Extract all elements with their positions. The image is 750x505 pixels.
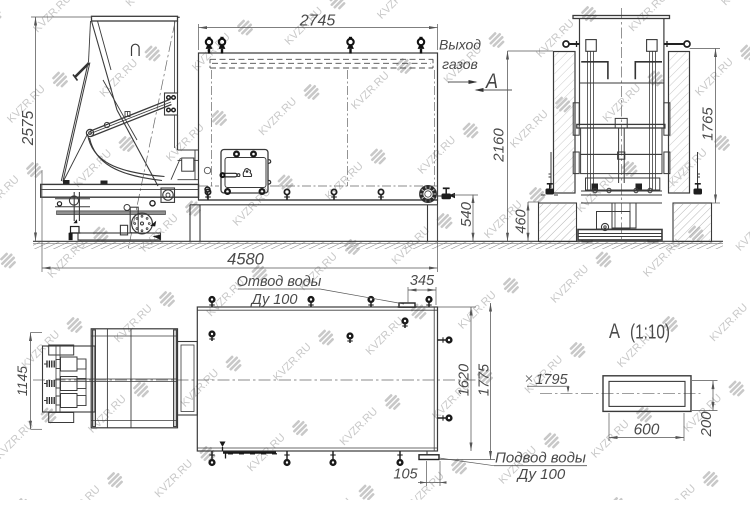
svg-text:345: 345 [410,273,435,289]
svg-text:2745: 2745 [299,13,336,30]
svg-text:А: А [609,320,620,343]
svg-text:1775: 1775 [477,363,493,396]
svg-text:Отвод воды: Отвод воды [237,274,322,290]
svg-text:газов: газов [442,56,478,72]
svg-text:А: А [484,70,498,93]
svg-text:200: 200 [698,411,715,438]
svg-text:105: 105 [393,467,418,483]
svg-text:Ду 100: Ду 100 [516,466,566,483]
svg-text:2575: 2575 [20,110,37,146]
svg-text:Подвод воды: Подвод воды [495,450,586,467]
svg-text:600: 600 [634,422,660,439]
svg-text:1795: 1795 [535,372,568,388]
svg-text:1145: 1145 [14,366,30,396]
svg-text:1765: 1765 [700,107,717,141]
svg-text:540: 540 [458,201,475,227]
svg-text:4580: 4580 [227,251,265,269]
svg-text:460: 460 [514,209,530,233]
svg-text:Выход: Выход [439,37,481,53]
svg-text:2160: 2160 [491,128,508,163]
svg-text:1620: 1620 [457,364,473,396]
svg-text:Ду 100: Ду 100 [250,292,298,308]
svg-text:(1:10): (1:10) [630,322,670,344]
